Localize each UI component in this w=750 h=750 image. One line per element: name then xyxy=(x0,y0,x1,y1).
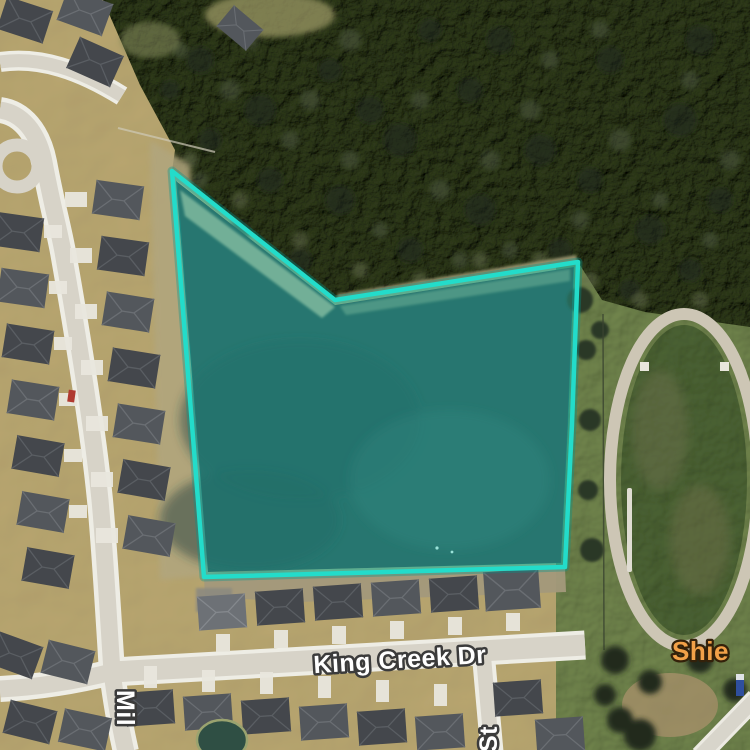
map-viewport[interactable]: King Creek Dr Mil St Shie xyxy=(0,0,750,750)
small-pond xyxy=(197,720,247,750)
parked-vehicle-cab xyxy=(736,674,744,680)
forest-clearing-small xyxy=(120,22,180,58)
parked-vehicle xyxy=(736,680,744,696)
satellite-map[interactable]: King Creek Dr Mil St Shie xyxy=(0,0,750,750)
field-fence-line xyxy=(603,314,604,650)
track-rail-strip xyxy=(627,488,632,572)
street-label-st-partial: St xyxy=(475,726,503,750)
track-marker xyxy=(720,362,729,371)
poi-label-shie-partial[interactable]: Shie xyxy=(672,636,729,666)
track-marker xyxy=(640,362,649,371)
street-label-mil-partial: Mil xyxy=(111,690,139,726)
